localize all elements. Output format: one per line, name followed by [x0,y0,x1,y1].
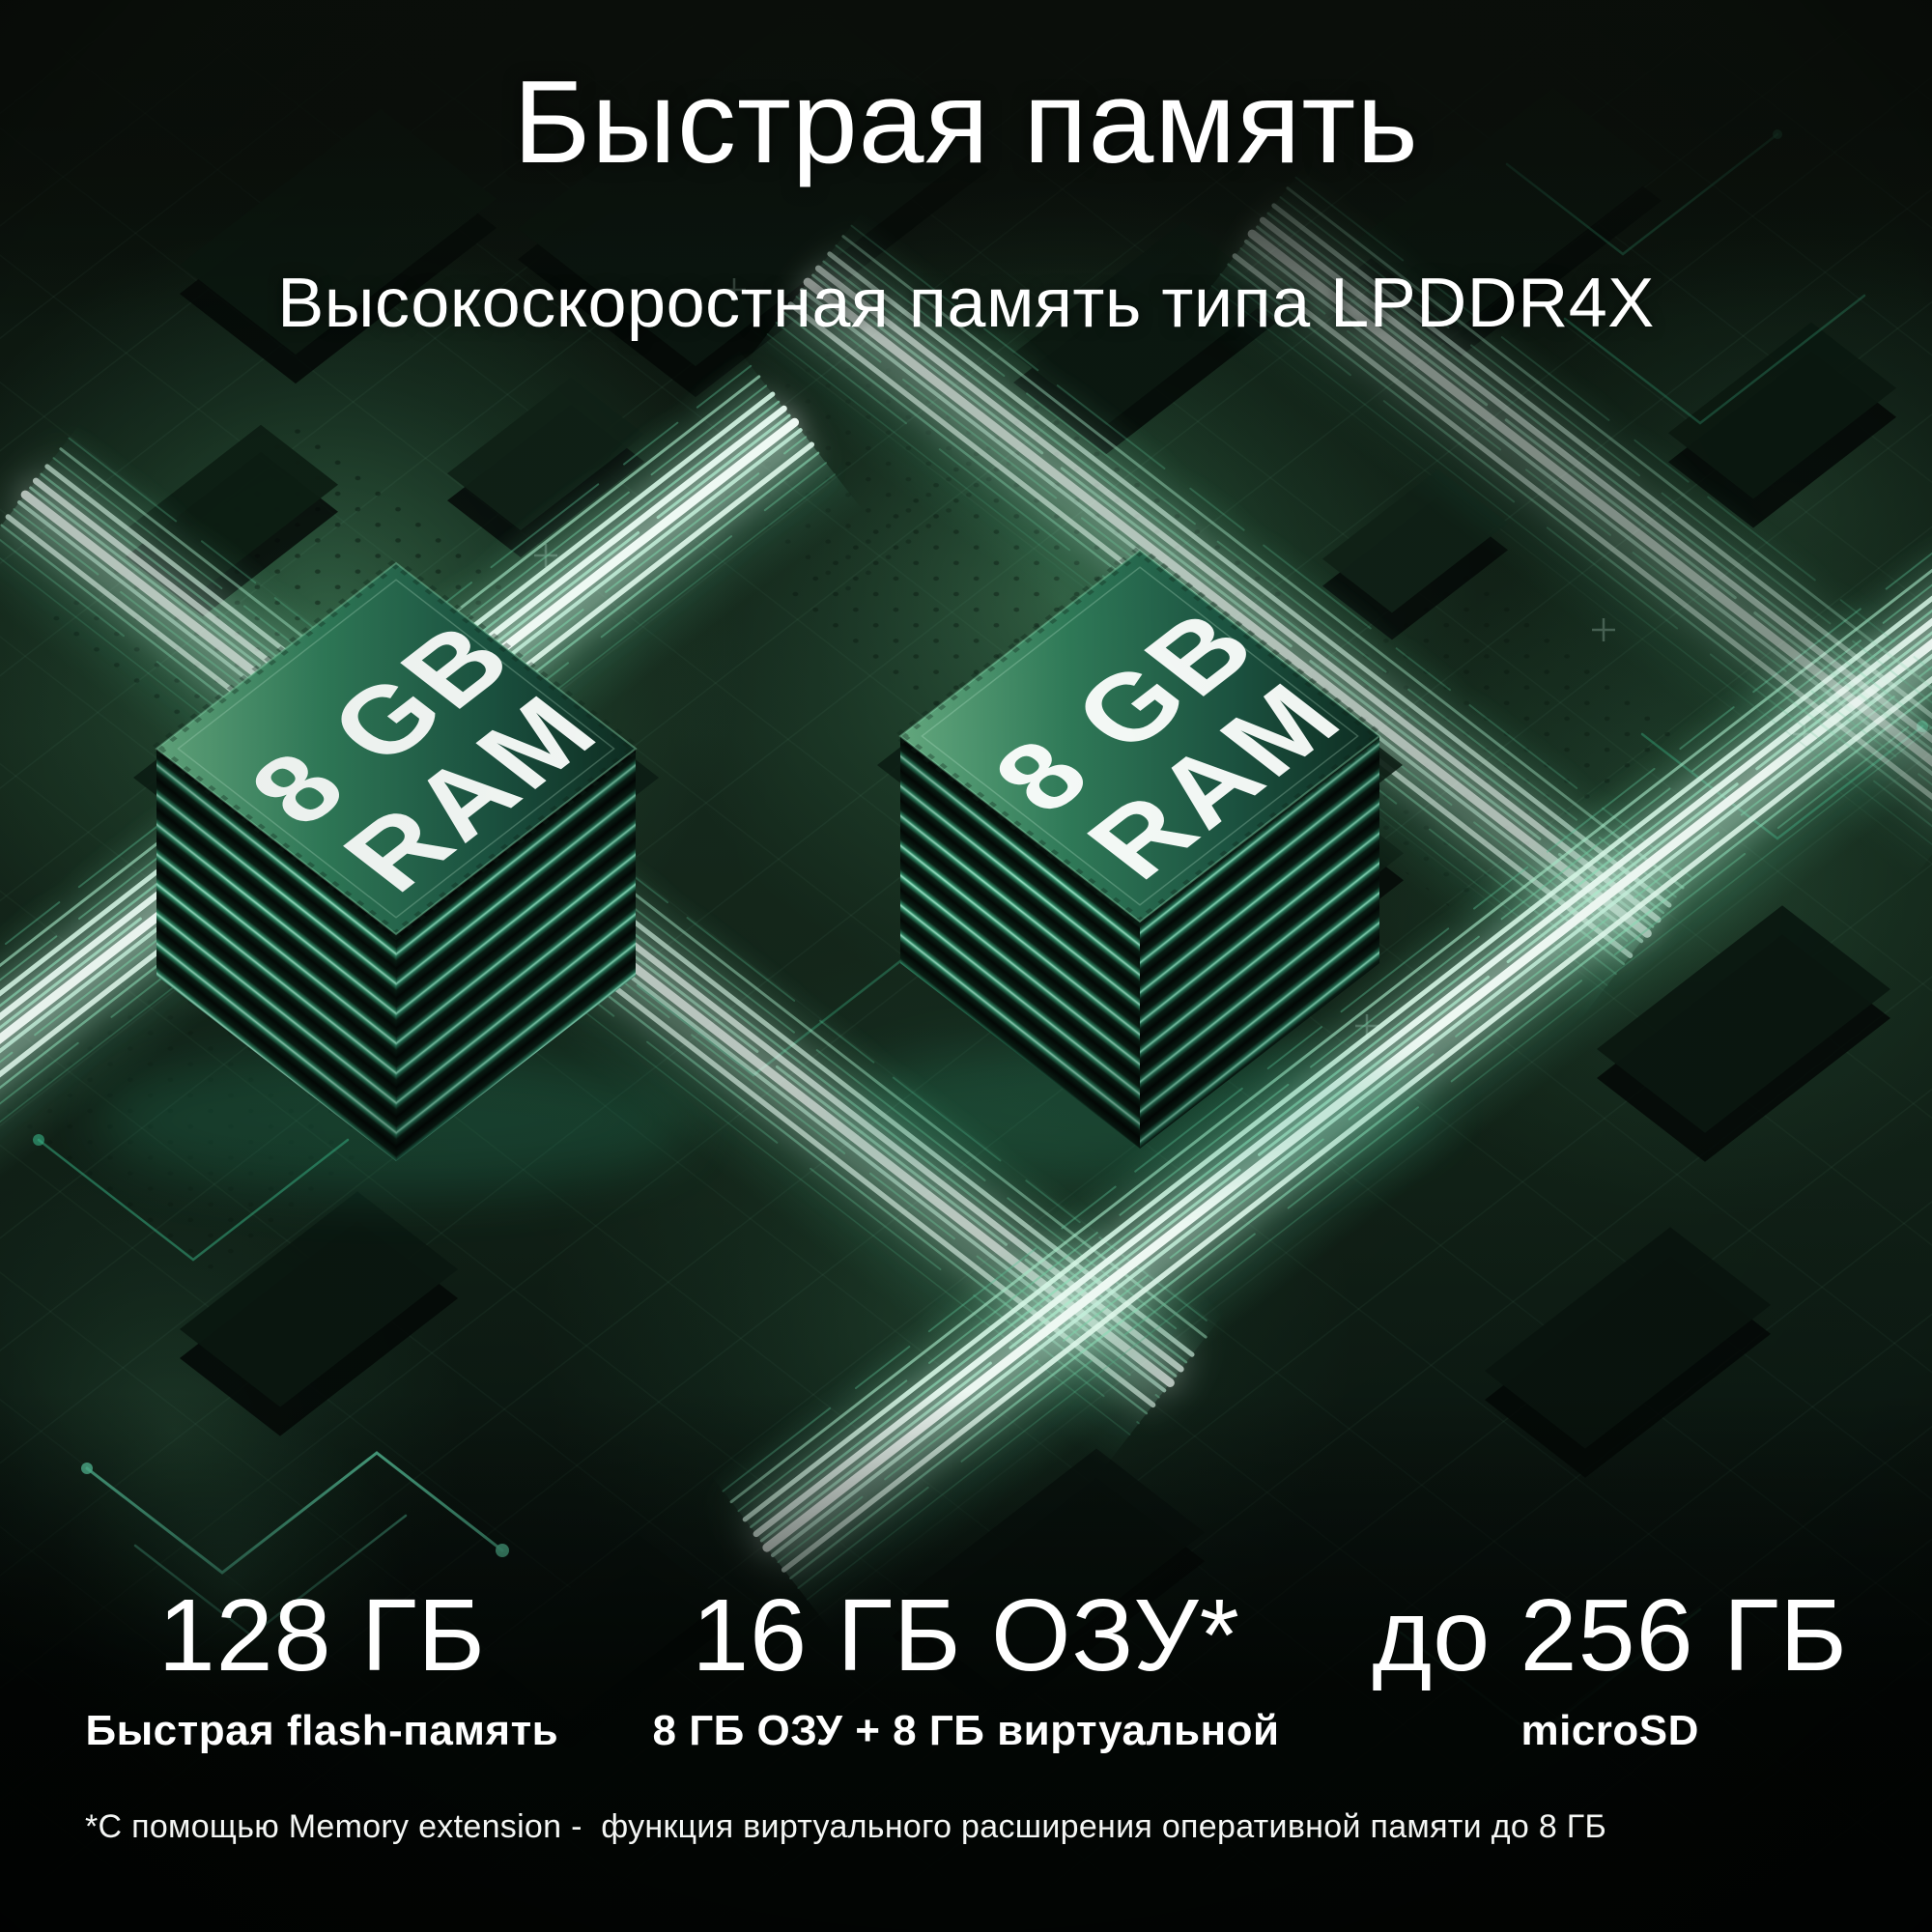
spec-microsd-caption: microSD [1288,1710,1932,1752]
spec-microsd: до 256 ГБ microSD [1288,1584,1932,1752]
footnote: *С помощью Memory extension - функция ви… [85,1808,1606,1846]
spec-storage-caption: Быстрая flash-память [0,1710,644,1752]
specs-row: 128 ГБ Быстрая flash-память 16 ГБ ОЗУ* 8… [0,1584,1932,1752]
page-title: Быстрая память [0,54,1932,189]
spec-storage-value: 128 ГБ [0,1584,644,1687]
spec-ram: 16 ГБ ОЗУ* 8 ГБ ОЗУ + 8 ГБ виртуальной [644,1584,1289,1752]
spec-microsd-value: до 256 ГБ [1288,1584,1932,1687]
spec-storage: 128 ГБ Быстрая flash-память [0,1584,644,1752]
spec-ram-caption: 8 ГБ ОЗУ + 8 ГБ виртуальной [644,1710,1289,1752]
spec-ram-value: 16 ГБ ОЗУ* [644,1584,1289,1687]
promo-banner: 8 GB RAM 8 GB RAM [0,0,1932,1932]
page-subtitle: Высокоскоростная память типа LPDDR4X [0,269,1932,338]
